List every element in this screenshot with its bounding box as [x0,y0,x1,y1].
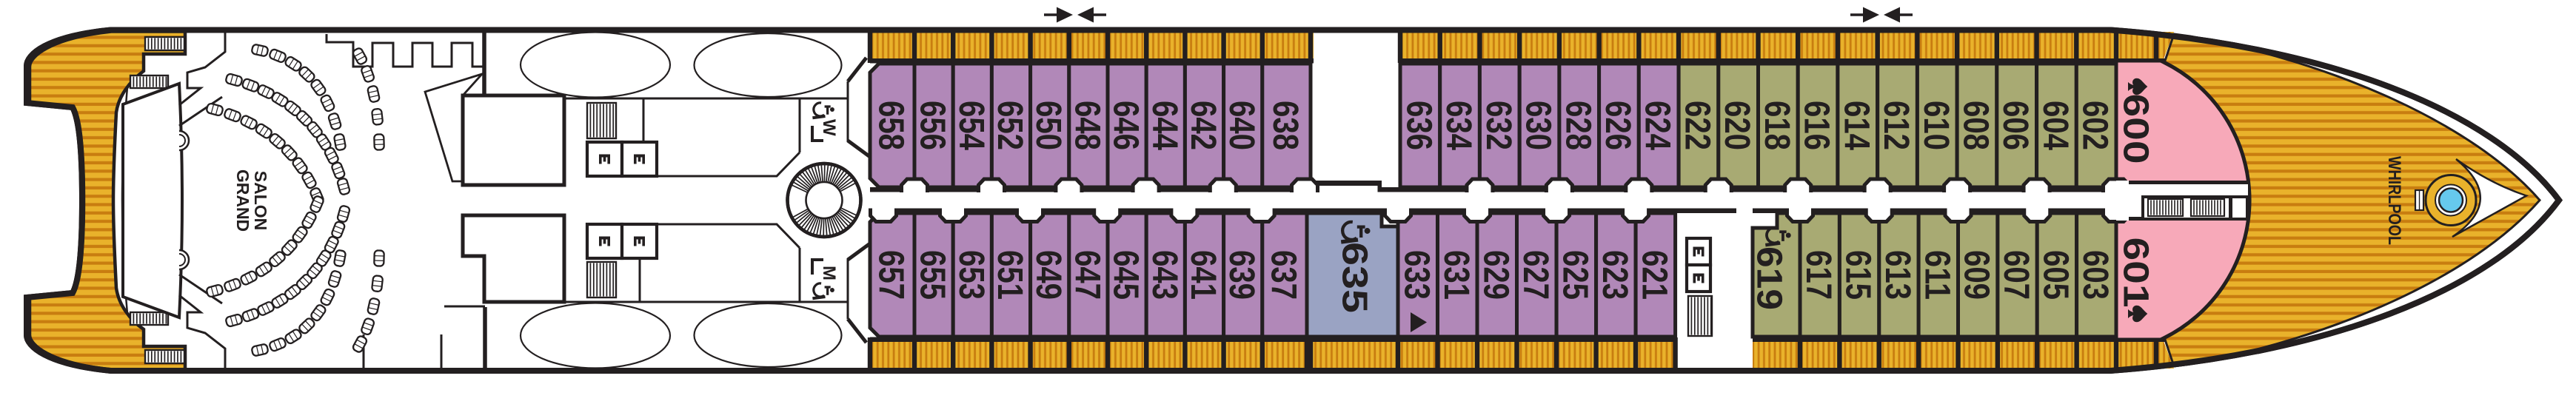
svg-text:624: 624 [1638,101,1678,150]
svg-text:605: 605 [2035,250,2075,300]
svg-text:GRAND: GRAND [233,169,252,232]
svg-text:648: 648 [1067,101,1107,150]
svg-text:611: 611 [1917,250,1957,300]
svg-text:SALON: SALON [251,171,270,231]
svg-text:654: 654 [951,101,991,150]
svg-text:633: 633 [1396,250,1436,300]
svg-text:628: 628 [1558,101,1598,150]
svg-text:651: 651 [990,250,1030,300]
svg-text:608: 608 [1956,101,1995,150]
svg-text:621: 621 [1634,250,1674,300]
svg-text:658: 658 [872,101,911,150]
svg-text:634: 634 [1439,101,1479,150]
svg-text:644: 644 [1145,101,1185,150]
svg-text:632: 632 [1479,101,1519,150]
svg-text:603: 603 [2075,250,2115,300]
svg-text:646: 646 [1106,101,1146,150]
svg-text:609: 609 [1957,250,1997,300]
svg-text:653: 653 [951,250,991,300]
svg-text:600: 600 [2116,94,2156,164]
svg-text:630: 630 [1519,101,1559,150]
svg-text:629: 629 [1476,250,1516,300]
svg-text:619: 619 [1750,246,1790,310]
svg-text:WHIRLPOOL: WHIRLPOOL [2384,156,2404,245]
svg-text:606: 606 [1995,101,2035,150]
svg-text:614: 614 [1836,101,1876,150]
svg-text:613: 613 [1878,250,1918,300]
svg-text:631: 631 [1436,250,1476,300]
svg-text:612: 612 [1876,101,1916,150]
svg-text:618: 618 [1757,101,1797,150]
svg-text:M: M [819,266,839,280]
svg-text:641: 641 [1183,250,1223,300]
svg-text:647: 647 [1067,250,1107,300]
svg-text:636: 636 [1399,101,1439,150]
svg-text:638: 638 [1265,101,1305,150]
svg-text:610: 610 [1916,101,1956,150]
svg-text:615: 615 [1839,250,1879,300]
svg-text:649: 649 [1028,250,1068,300]
svg-text:656: 656 [913,101,953,150]
svg-text:620: 620 [1717,101,1757,150]
svg-text:623: 623 [1595,250,1635,300]
svg-text:601: 601 [2116,238,2156,308]
svg-text:640: 640 [1222,101,1262,150]
svg-text:645: 645 [1106,250,1146,300]
svg-text:607: 607 [1996,250,2036,300]
svg-text:639: 639 [1222,250,1262,300]
svg-text:627: 627 [1516,250,1556,300]
svg-text:652: 652 [990,101,1030,150]
svg-text:650: 650 [1028,101,1068,150]
svg-text:643: 643 [1145,250,1185,300]
svg-text:657: 657 [872,250,911,300]
svg-text:635: 635 [1335,242,1375,313]
svg-text:622: 622 [1677,101,1717,150]
svg-text:602: 602 [2075,101,2115,150]
svg-text:626: 626 [1598,101,1638,150]
svg-text:625: 625 [1555,250,1595,300]
svg-text:637: 637 [1263,250,1303,300]
svg-text:642: 642 [1183,101,1223,150]
svg-text:616: 616 [1797,101,1837,150]
svg-text:604: 604 [2035,101,2075,150]
svg-text:617: 617 [1799,250,1839,300]
svg-text:W: W [819,119,839,136]
svg-text:655: 655 [913,250,953,300]
